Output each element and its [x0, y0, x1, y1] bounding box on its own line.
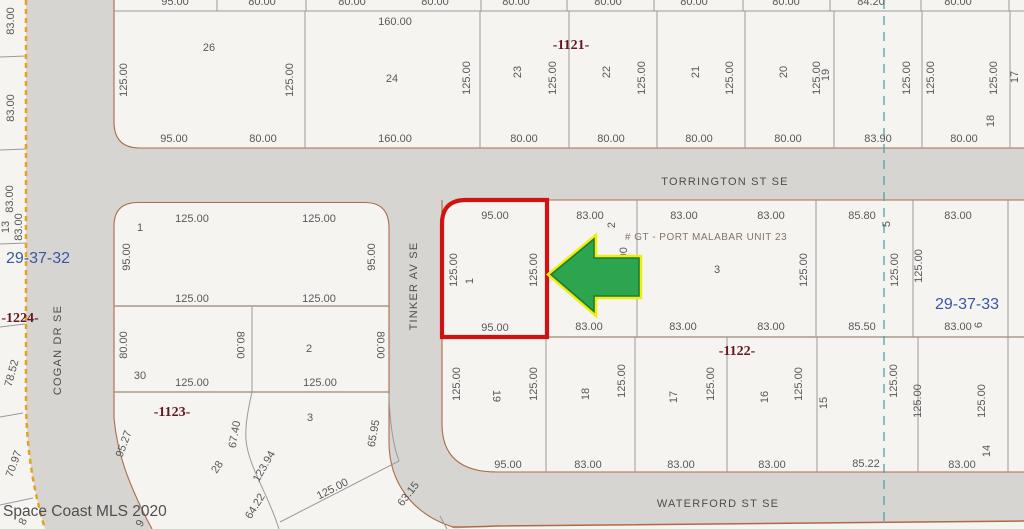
- svg-text:83.00: 83.00: [576, 210, 604, 222]
- svg-text:21: 21: [690, 66, 702, 78]
- svg-text:95.00: 95.00: [160, 133, 188, 145]
- svg-text:95.00: 95.00: [161, 0, 189, 8]
- svg-text:84.20: 84.20: [857, 0, 885, 8]
- svg-text:18: 18: [985, 115, 997, 127]
- svg-text:95.00: 95.00: [494, 459, 522, 471]
- svg-text:2: 2: [306, 343, 312, 355]
- svg-text:-1123-: -1123-: [154, 405, 191, 420]
- svg-text:125.00: 125.00: [913, 249, 925, 283]
- svg-text:17: 17: [668, 391, 680, 403]
- svg-text:83.00: 83.00: [758, 459, 786, 471]
- svg-text:80.00: 80.00: [944, 0, 972, 8]
- svg-text:20: 20: [778, 66, 790, 78]
- svg-text:125.00: 125.00: [175, 377, 209, 389]
- svg-text:80.00: 80.00: [774, 133, 802, 145]
- svg-text:125.00: 125.00: [175, 213, 209, 225]
- svg-text:125.00: 125.00: [461, 61, 473, 95]
- svg-text:83.00: 83.00: [757, 210, 785, 222]
- svg-text:95.00: 95.00: [121, 243, 133, 271]
- svg-text:3: 3: [714, 264, 720, 276]
- svg-text:80.00: 80.00: [594, 0, 622, 8]
- svg-text:83.00: 83.00: [757, 321, 785, 333]
- svg-text:85.80: 85.80: [848, 210, 876, 222]
- svg-text:19: 19: [490, 390, 502, 402]
- svg-text:125.00: 125.00: [284, 63, 296, 97]
- svg-text:TORRINGTON ST SE: TORRINGTON ST SE: [661, 176, 788, 188]
- svg-text:13: 13: [0, 221, 12, 233]
- svg-text:18: 18: [580, 388, 592, 400]
- svg-text:85.22: 85.22: [852, 458, 880, 470]
- svg-text:83.00: 83.00: [4, 185, 16, 213]
- svg-text:-1122-: -1122-: [719, 344, 756, 359]
- svg-text:16: 16: [759, 391, 771, 403]
- svg-text:95.00: 95.00: [481, 210, 509, 222]
- svg-text:WATERFORD ST SE: WATERFORD ST SE: [657, 498, 779, 510]
- svg-text:80.00: 80.00: [118, 331, 130, 359]
- svg-text:83.00: 83.00: [948, 459, 976, 471]
- svg-text:1: 1: [137, 222, 143, 234]
- svg-text:85.50: 85.50: [848, 321, 876, 333]
- svg-text:125.00: 125.00: [925, 61, 937, 95]
- svg-text:83.00: 83.00: [944, 210, 972, 222]
- svg-text:125.00: 125.00: [705, 367, 717, 401]
- svg-text:6: 6: [973, 322, 985, 328]
- svg-text:83.00: 83.00: [5, 94, 17, 122]
- svg-text:83.00: 83.00: [575, 321, 603, 333]
- svg-text:-1121-: -1121-: [553, 38, 590, 53]
- svg-text:125.00: 125.00: [888, 364, 900, 398]
- svg-text:80.00: 80.00: [685, 133, 713, 145]
- svg-text:80.00: 80.00: [950, 133, 978, 145]
- svg-text:80.00: 80.00: [248, 0, 276, 8]
- svg-text:83.00: 83.00: [944, 321, 972, 333]
- svg-text:125.00: 125.00: [616, 364, 628, 398]
- svg-text:95.00: 95.00: [366, 243, 378, 271]
- svg-text:3: 3: [307, 412, 313, 424]
- svg-text:125.00: 125.00: [528, 367, 540, 401]
- svg-text:80.00: 80.00: [234, 331, 246, 359]
- svg-text:125.00: 125.00: [901, 61, 913, 95]
- svg-text:30: 30: [134, 370, 146, 382]
- svg-text:83.90: 83.90: [864, 133, 892, 145]
- svg-text:80.00: 80.00: [510, 133, 538, 145]
- svg-text:125.00: 125.00: [889, 253, 901, 287]
- svg-text:17: 17: [1009, 71, 1021, 83]
- svg-text:125.00: 125.00: [798, 253, 810, 287]
- svg-text:80.00: 80.00: [597, 133, 625, 145]
- svg-text:15: 15: [818, 397, 830, 409]
- svg-text:Space Coast MLS 2020: Space Coast MLS 2020: [3, 503, 167, 520]
- svg-text:29-37-33: 29-37-33: [935, 296, 999, 313]
- svg-text:125.00: 125.00: [912, 384, 924, 418]
- svg-text:83.00: 83.00: [574, 459, 602, 471]
- svg-text:COGAN DR SE: COGAN DR SE: [52, 305, 64, 395]
- svg-text:83.00: 83.00: [669, 321, 697, 333]
- svg-text:160.00: 160.00: [378, 133, 412, 145]
- svg-text:125.00: 125.00: [451, 367, 463, 401]
- svg-text:125.00: 125.00: [547, 61, 559, 95]
- svg-text:29-37-32: 29-37-32: [6, 250, 70, 267]
- svg-text:80.00: 80.00: [680, 0, 708, 8]
- svg-text:125.00: 125.00: [724, 61, 736, 95]
- svg-text:# GT - PORT MALABAR UNIT 23: # GT - PORT MALABAR UNIT 23: [625, 232, 787, 243]
- svg-text:80.00: 80.00: [772, 0, 800, 8]
- svg-text:83.00: 83.00: [670, 210, 698, 222]
- svg-text:125.00: 125.00: [448, 253, 460, 287]
- svg-text:TINKER AV SE: TINKER AV SE: [408, 242, 420, 331]
- svg-text:22: 22: [601, 66, 613, 78]
- svg-text:80.00: 80.00: [421, 0, 449, 8]
- svg-text:14: 14: [981, 445, 993, 457]
- svg-text:83.00: 83.00: [13, 213, 25, 241]
- svg-text:125.00: 125.00: [636, 61, 648, 95]
- svg-text:125.00: 125.00: [528, 253, 540, 287]
- svg-text:-1224-: -1224-: [1, 311, 39, 326]
- svg-text:5: 5: [881, 221, 893, 227]
- svg-text:1: 1: [464, 278, 476, 284]
- svg-text:95.00: 95.00: [481, 322, 509, 334]
- svg-text:125.00: 125.00: [303, 377, 337, 389]
- svg-text:160.00: 160.00: [378, 16, 412, 28]
- svg-text:2: 2: [606, 222, 618, 228]
- svg-text:83.00: 83.00: [5, 7, 17, 35]
- svg-text:125.00: 125.00: [976, 384, 988, 418]
- svg-text:125.00: 125.00: [175, 293, 209, 305]
- svg-text:125.00: 125.00: [793, 367, 805, 401]
- svg-text:80.00: 80.00: [374, 331, 386, 359]
- svg-text:24: 24: [386, 73, 398, 85]
- svg-text:125.00: 125.00: [302, 213, 336, 225]
- svg-text:19: 19: [820, 69, 832, 81]
- svg-text:83.00: 83.00: [667, 459, 695, 471]
- svg-text:80.00: 80.00: [502, 0, 530, 8]
- svg-text:26: 26: [203, 42, 215, 54]
- svg-text:125.00: 125.00: [302, 293, 336, 305]
- svg-text:125.00: 125.00: [988, 61, 1000, 95]
- svg-text:80.00: 80.00: [338, 0, 366, 8]
- svg-text:80.00: 80.00: [249, 133, 277, 145]
- svg-text:125.00: 125.00: [118, 63, 130, 97]
- svg-text:23: 23: [512, 66, 524, 78]
